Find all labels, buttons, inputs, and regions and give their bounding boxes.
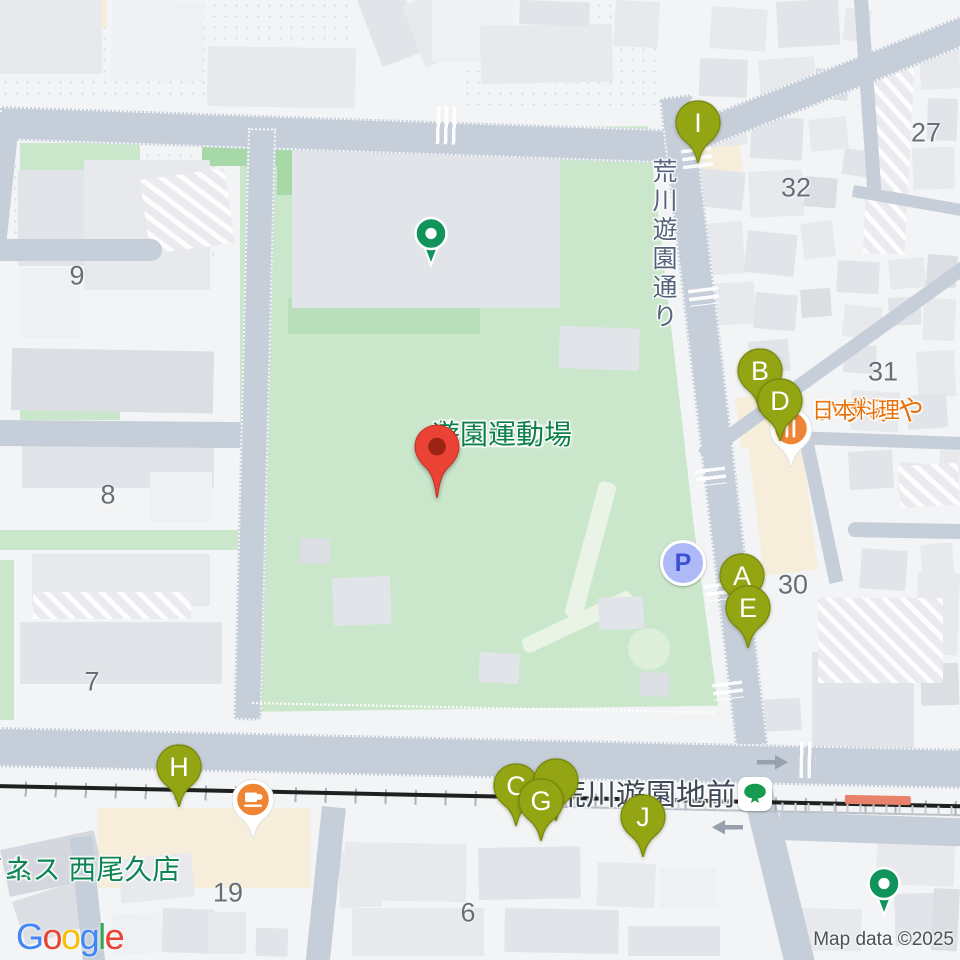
building: [753, 292, 798, 332]
building: [699, 58, 748, 98]
building: [598, 596, 644, 630]
building: [923, 298, 956, 341]
road: [0, 420, 260, 448]
building: [596, 862, 656, 908]
google-logo-letter: o: [43, 916, 62, 957]
building: [11, 348, 214, 414]
parking-lot: [898, 463, 960, 508]
building: [916, 350, 956, 398]
street-name-label-line: 荒川遊園通り: [649, 158, 676, 332]
building: [912, 147, 955, 190]
building: [709, 6, 768, 52]
svg-text:H: H: [169, 752, 189, 782]
building: [519, 0, 590, 26]
building: [111, 0, 204, 82]
building: [836, 260, 880, 294]
building: [256, 928, 288, 957]
anytime-fitness-label-line: フィットネス 西尾久店: [0, 855, 180, 885]
building: [0, 0, 102, 74]
google-logo-letter: e: [105, 916, 124, 957]
building: [559, 326, 640, 371]
svg-text:G: G: [530, 786, 551, 816]
building: [207, 46, 356, 109]
train-car: [845, 795, 911, 805]
road: [793, 431, 960, 450]
building: [338, 851, 382, 908]
building: [639, 672, 670, 697]
building: [161, 908, 215, 954]
block-number: 19: [213, 878, 243, 909]
building: [478, 652, 520, 684]
building: [776, 0, 840, 48]
google-logo-letter: G: [16, 916, 43, 957]
block-number: 6: [460, 898, 475, 929]
svg-text:I: I: [694, 108, 702, 138]
block-number: 27: [911, 118, 941, 149]
crosswalk: [712, 680, 744, 701]
block-number: 9: [69, 261, 84, 292]
building: [800, 220, 836, 260]
park-plaza: [628, 628, 670, 670]
parking-lot: [33, 592, 191, 619]
block-number: 32: [781, 173, 811, 204]
parking-icon[interactable]: P: [660, 540, 706, 586]
block-number: 8: [100, 480, 115, 511]
svg-text:J: J: [636, 802, 650, 832]
map-attribution: Map data ©2025: [813, 929, 954, 951]
block-number: 30: [778, 570, 808, 601]
building: [628, 926, 720, 956]
building: [332, 576, 392, 626]
road: [848, 522, 960, 539]
road: [0, 239, 162, 261]
izumiya-label-line: 日本料理: [812, 396, 900, 426]
building: [300, 538, 330, 564]
building: [848, 450, 894, 490]
block-number: 31: [868, 357, 898, 388]
building: [208, 912, 246, 954]
crosswalk: [799, 742, 816, 778]
map-canvas[interactable]: あらかわ遊園スポーツハウス荒川区立あらかわ遊園運動場荒川遊園通り荒川遊園地前いず…: [0, 0, 960, 960]
building: [888, 257, 926, 290]
svg-text:E: E: [739, 593, 757, 623]
google-logo-letter: g: [80, 916, 99, 957]
svg-text:D: D: [770, 386, 790, 416]
parking-letter: P: [675, 549, 692, 578]
green-area: [0, 560, 14, 720]
google-logo-letter: o: [61, 916, 80, 957]
building: [859, 548, 908, 591]
building: [744, 230, 798, 277]
crosswalk: [436, 106, 457, 145]
block-number: 7: [84, 667, 99, 698]
building: [660, 867, 717, 908]
crosswalk: [688, 286, 720, 307]
building: [800, 288, 832, 318]
building: [20, 622, 222, 684]
parking-lot: [818, 598, 943, 683]
building: [150, 472, 212, 522]
green-area: [0, 530, 245, 550]
crosswalk: [695, 466, 727, 487]
building: [614, 0, 660, 48]
building: [808, 116, 849, 152]
building: [478, 846, 581, 900]
google-logo[interactable]: Google: [16, 916, 123, 958]
building: [504, 908, 619, 954]
tram-station-icon[interactable]: [738, 777, 772, 811]
building: [480, 24, 613, 84]
